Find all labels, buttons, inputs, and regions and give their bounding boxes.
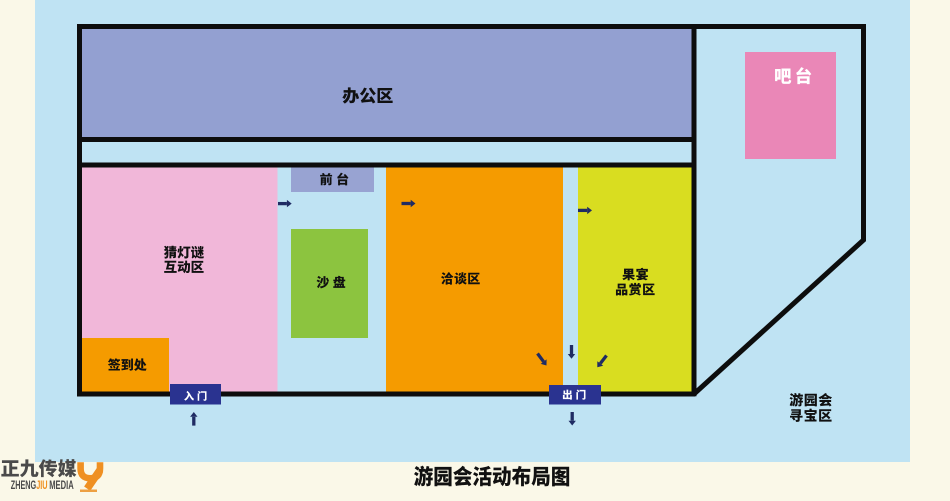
svg-text:MEDIA: MEDIA	[49, 478, 74, 492]
svg-text:ZHENG: ZHENG	[11, 478, 36, 492]
svg-text:JIU: JIU	[36, 478, 47, 492]
